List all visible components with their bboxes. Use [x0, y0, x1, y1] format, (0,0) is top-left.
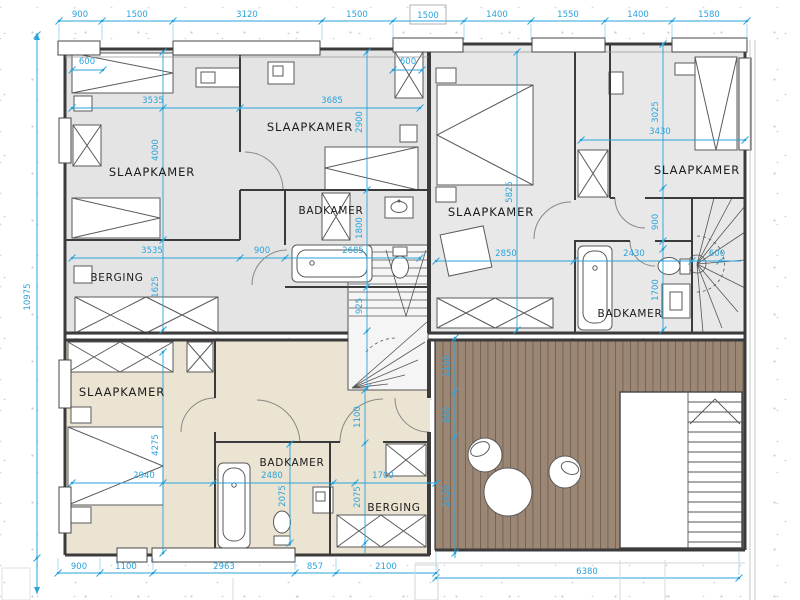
- room-label: SLAAPKAMER: [79, 385, 165, 399]
- bed-symbol: [72, 198, 160, 238]
- room-label: BADKAMER: [299, 205, 364, 217]
- window-symbol: [532, 38, 605, 52]
- dim-label: 3535: [142, 96, 164, 106]
- dim-label: 2075: [278, 485, 288, 507]
- roof-deck: [435, 340, 745, 550]
- dim-label: 1580: [698, 10, 720, 20]
- dim-label: 2480: [261, 471, 283, 481]
- room-label: BADKAMER: [598, 308, 663, 320]
- window-symbol: [173, 41, 320, 55]
- storage-hatch: [75, 297, 218, 333]
- door-symbol: [117, 548, 147, 562]
- dim-label: 3685: [321, 96, 343, 106]
- dim-label: 1500: [417, 11, 439, 21]
- toilet-icon: [274, 511, 291, 545]
- sink-icon: [385, 197, 413, 218]
- nightstand-symbol: [400, 125, 417, 142]
- room-label: BERGING: [367, 502, 420, 514]
- dim-label: 10975: [23, 283, 33, 310]
- dim-label: 2963: [213, 562, 235, 572]
- bed-symbol: [325, 147, 418, 190]
- dim-label: 1700: [372, 471, 394, 481]
- window-symbol: [59, 360, 71, 408]
- dim-label: 2685: [342, 246, 364, 256]
- room-label: BADKAMER: [260, 457, 325, 469]
- bathtub-icon: [218, 463, 250, 548]
- dim-label: 2900: [355, 111, 365, 133]
- dim-label: 2100: [375, 562, 397, 572]
- dim-label: 1800: [355, 217, 365, 239]
- dim-label: 3120: [236, 10, 258, 20]
- dim-label: 1100: [442, 355, 452, 377]
- room-label: BERGING: [90, 272, 143, 284]
- dim-label: 4000: [151, 139, 161, 161]
- window-symbol: [393, 38, 463, 52]
- round-table-icon: [484, 468, 532, 516]
- closet-symbol: [437, 298, 553, 328]
- dim-label: 5825: [505, 181, 515, 203]
- closet-symbol: [187, 342, 213, 372]
- closet-symbol: [73, 125, 101, 166]
- dim-label: 2430: [442, 485, 452, 507]
- shelf-symbol: [675, 63, 695, 75]
- room-label: SLAAPKAMER: [448, 205, 534, 219]
- nightstand-symbol: [74, 96, 92, 111]
- dim-label: 2940: [133, 471, 155, 481]
- dim-label: 2850: [495, 249, 517, 259]
- dim-label: 1700: [651, 279, 661, 301]
- desk-symbol: [268, 62, 294, 84]
- dim-label: 1100: [353, 406, 363, 428]
- dim-label: 2430: [623, 249, 645, 259]
- room-label: SLAAPKAMER: [267, 120, 353, 134]
- nightstand-symbol: [436, 68, 456, 83]
- closet-symbol: [68, 342, 173, 372]
- dim-label: 3535: [141, 246, 163, 256]
- floor-plan-sheet: 900 1500 3120 1500 1500 1400 1550 1400 1…: [0, 0, 800, 600]
- dim-label: 600: [709, 249, 725, 259]
- nightstand-symbol: [71, 407, 91, 423]
- dim-label: 1100: [115, 562, 137, 572]
- desk-symbol: [609, 72, 623, 94]
- storage-hatch: [337, 515, 426, 547]
- dim-label: 6380: [576, 567, 598, 577]
- bed-symbol: [695, 57, 737, 150]
- dim-label: 600: [79, 57, 95, 67]
- dim-label: 1400: [627, 10, 649, 20]
- nightstand-symbol: [436, 187, 456, 202]
- dim-label: 1625: [151, 276, 161, 298]
- dim-chain-top: 900 1500 3120 1500 1500 1400 1550 1400 1…: [56, 5, 751, 40]
- dim-label: 900: [254, 246, 270, 256]
- dim-label: 1550: [557, 10, 579, 20]
- window-symbol: [58, 41, 100, 55]
- dim-label: 1400: [486, 10, 508, 20]
- window-symbol: [59, 118, 71, 163]
- dim-label: 857: [307, 562, 323, 572]
- desk-symbol: [196, 68, 240, 87]
- dim-label: 1500: [126, 10, 148, 20]
- window-symbol: [152, 548, 295, 562]
- dim-label: 600: [400, 57, 416, 67]
- dim-label: 900: [651, 214, 661, 230]
- room-label: SLAAPKAMER: [654, 163, 740, 177]
- nightstand-symbol: [71, 507, 91, 523]
- closet-symbol: [578, 150, 608, 197]
- dim-label: 4275: [151, 434, 161, 456]
- window-symbol: [672, 38, 747, 52]
- shower-symbol: [662, 284, 690, 318]
- toilet-icon: [392, 247, 409, 278]
- window-symbol: [739, 58, 751, 150]
- bed-symbol: [68, 427, 163, 505]
- dim-label: 1500: [346, 10, 368, 20]
- dim-label: 3025: [651, 101, 661, 123]
- cabinet-symbol: [74, 266, 92, 283]
- window-symbol: [59, 487, 71, 533]
- dim-label: 900: [71, 562, 87, 572]
- room-label: SLAAPKAMER: [109, 165, 195, 179]
- floor-plan-drawing: 900 1500 3120 1500 1500 1400 1550 1400 1…: [0, 0, 800, 600]
- dim-left-total: 10975: [23, 32, 41, 595]
- rug-symbol: [440, 226, 492, 276]
- bed-symbol: [437, 85, 533, 185]
- dim-label: 900: [442, 407, 452, 423]
- deck-stairwell-opening: [620, 392, 742, 548]
- dim-label: 900: [72, 10, 88, 20]
- dim-label: 3430: [649, 127, 671, 137]
- dim-label: 925: [355, 298, 365, 314]
- dim-label: 2075: [353, 486, 363, 508]
